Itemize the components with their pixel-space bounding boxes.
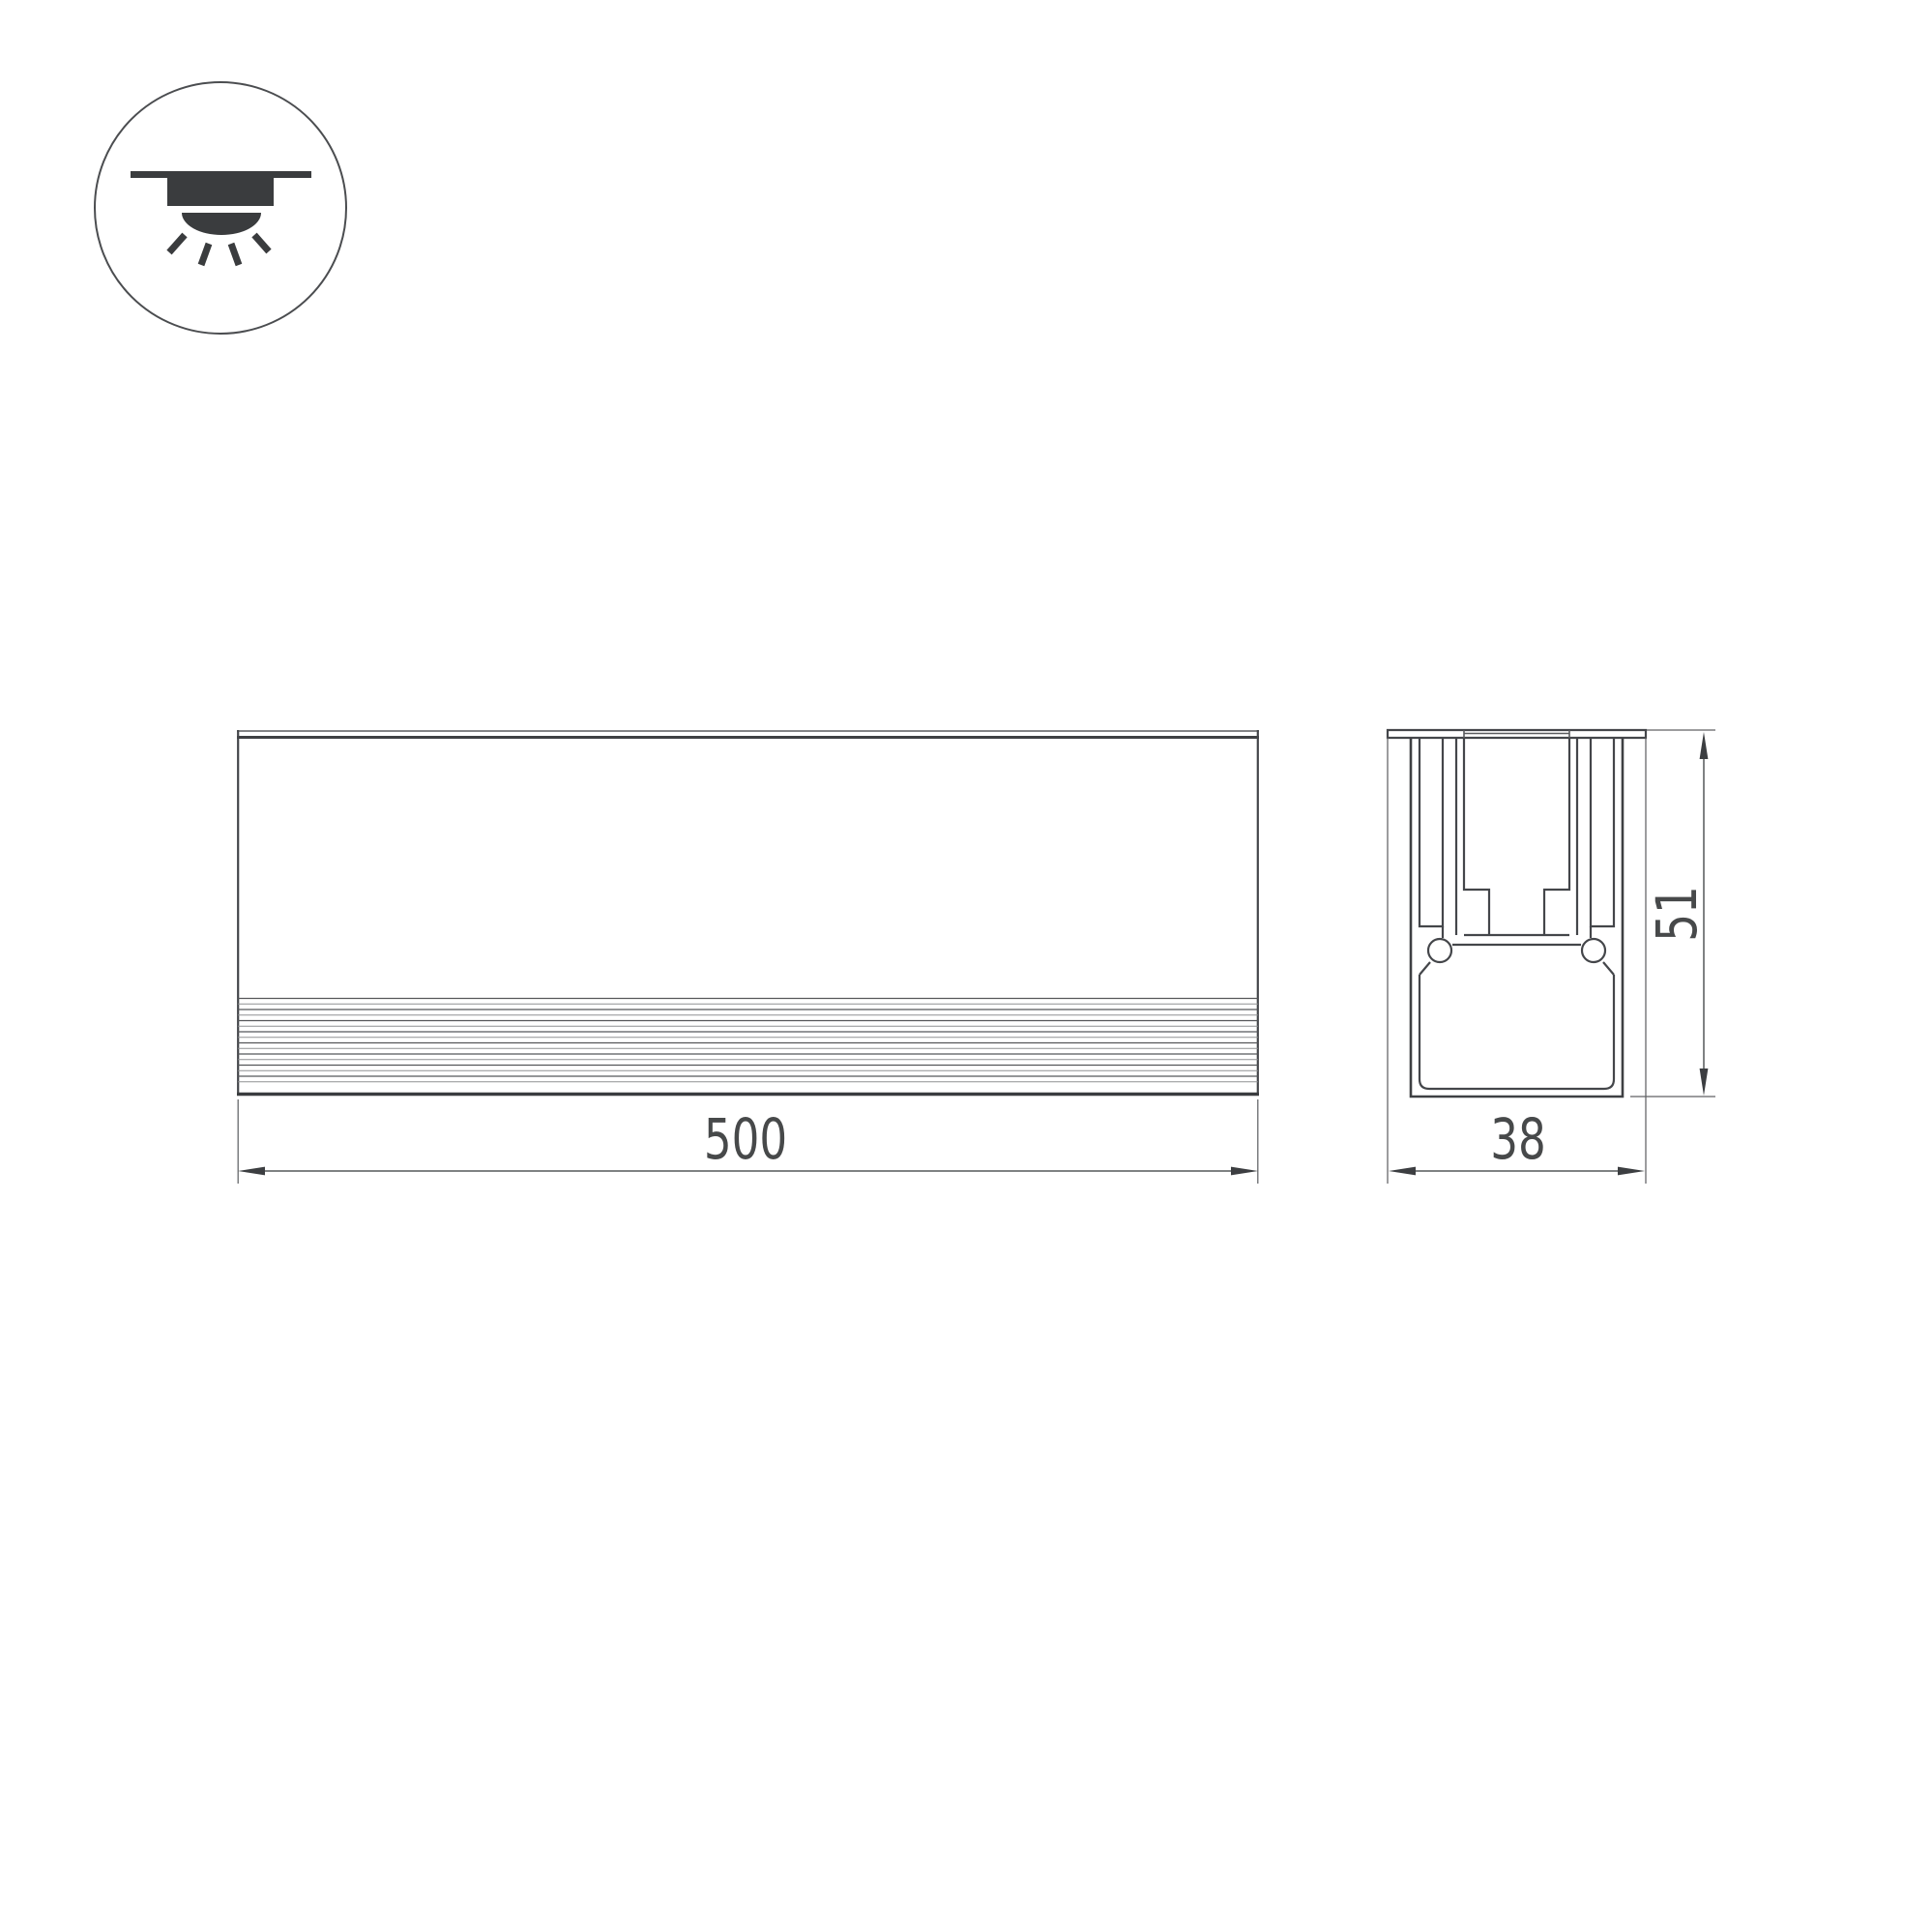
front-view-stripes	[238, 999, 1258, 1082]
drawing-canvas: 500 38	[0, 0, 1932, 1932]
recessed-downlight-icon	[95, 82, 346, 334]
front-length-dimension: 500	[238, 1099, 1258, 1184]
arrowhead-right	[1618, 1167, 1645, 1176]
icon-circle-outline	[95, 82, 346, 334]
section-cavity-left	[1464, 738, 1489, 935]
section-slot-stubs	[1443, 926, 1591, 938]
arrowhead-right	[1231, 1167, 1258, 1176]
section-left-slot	[1420, 738, 1443, 926]
ceiling-line	[131, 171, 311, 178]
section-right-slot	[1591, 738, 1614, 926]
section-chamfer-left	[1420, 962, 1430, 975]
light-dome	[182, 213, 261, 235]
section-cavity-right	[1544, 738, 1569, 935]
arrowhead-bottom	[1700, 1068, 1709, 1096]
recessed-fixture-body	[167, 178, 274, 206]
technical-drawing: 500 38	[0, 0, 1932, 1932]
arrowhead-left	[1389, 1167, 1416, 1176]
clip-pocket-right	[1582, 939, 1605, 962]
section-width-dimension: 38	[1388, 738, 1646, 1184]
section-view	[1388, 730, 1646, 1097]
front-view	[237, 730, 1259, 1095]
width-dimension-label: 38	[1490, 1108, 1546, 1173]
light-ray	[231, 244, 239, 265]
light-ray	[201, 244, 209, 265]
section-chamfer-right	[1603, 962, 1614, 975]
light-ray	[169, 235, 185, 252]
length-dimension-label: 500	[704, 1108, 787, 1173]
light-rays-icon	[169, 235, 269, 265]
light-ray	[254, 235, 269, 251]
clip-pocket-left	[1428, 939, 1451, 962]
section-lower-cavity	[1420, 975, 1614, 1089]
arrowhead-top	[1700, 732, 1709, 759]
height-dimension-label: 51	[1646, 886, 1711, 942]
section-height-dimension: 51	[1630, 730, 1715, 1097]
arrowhead-left	[238, 1167, 265, 1176]
